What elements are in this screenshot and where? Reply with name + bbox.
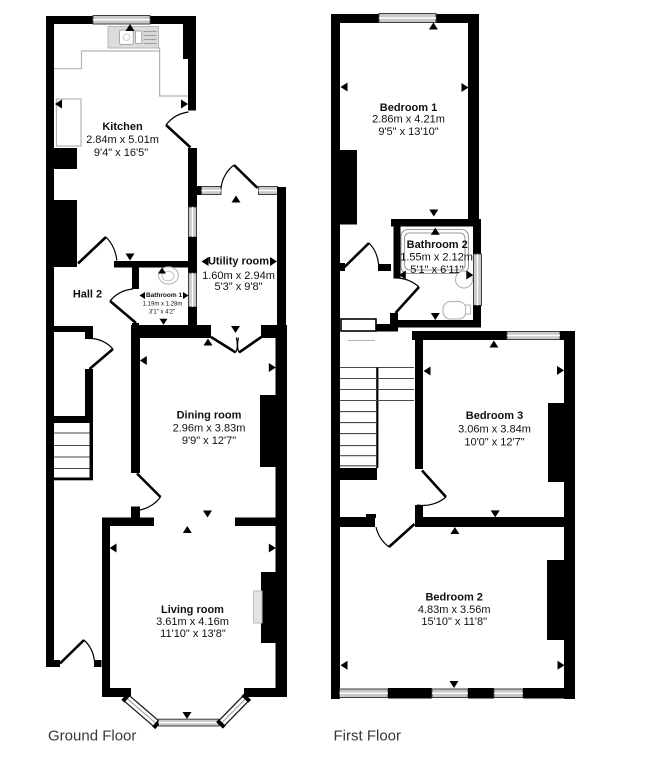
- svg-text:5'1" x 6'11": 5'1" x 6'11": [410, 264, 463, 276]
- svg-text:3'1" x 4'2": 3'1" x 4'2": [149, 309, 175, 315]
- svg-text:Dining room: Dining room: [177, 410, 242, 422]
- svg-text:15'10" x 11'8": 15'10" x 11'8": [421, 616, 487, 628]
- svg-text:Bedroom 1: Bedroom 1: [380, 102, 437, 114]
- svg-text:1.55m x 2.12m: 1.55m x 2.12m: [400, 252, 473, 264]
- svg-text:Hall 2: Hall 2: [73, 289, 102, 301]
- svg-text:Bedroom 3: Bedroom 3: [466, 410, 523, 422]
- svg-text:4.83m x 3.56m: 4.83m x 3.56m: [418, 604, 491, 616]
- svg-text:3.61m x 4.16m: 3.61m x 4.16m: [156, 616, 229, 628]
- svg-text:1.19m x 1.28m: 1.19m x 1.28m: [143, 301, 183, 307]
- svg-text:11'10" x 13'8": 11'10" x 13'8": [160, 628, 226, 640]
- svg-text:2.84m x 5.01m: 2.84m x 5.01m: [86, 134, 159, 146]
- svg-text:9'4" x 16'5": 9'4" x 16'5": [94, 147, 148, 159]
- svg-text:10'0" x 12'7": 10'0" x 12'7": [464, 437, 524, 449]
- svg-text:9'9" x 12'7": 9'9" x 12'7": [182, 435, 236, 447]
- svg-text:First Floor: First Floor: [334, 728, 402, 745]
- svg-text:Bedroom 2: Bedroom 2: [425, 592, 482, 604]
- svg-text:1.60m x 2.94m: 1.60m x 2.94m: [202, 270, 275, 282]
- svg-text:Utility room: Utility room: [208, 256, 269, 268]
- svg-text:Bathroom 2: Bathroom 2: [407, 239, 468, 251]
- svg-text:3.06m x 3.84m: 3.06m x 3.84m: [458, 424, 531, 436]
- svg-text:2.86m x 4.21m: 2.86m x 4.21m: [372, 114, 445, 126]
- svg-text:Living room: Living room: [161, 604, 224, 616]
- svg-text:9'5" x 13'10": 9'5" x 13'10": [378, 126, 438, 138]
- svg-text:Bathroom 1: Bathroom 1: [146, 292, 183, 299]
- svg-text:5'3" x 9'8": 5'3" x 9'8": [214, 281, 262, 293]
- svg-text:Ground Floor: Ground Floor: [48, 728, 136, 745]
- svg-text:2.96m x 3.83m: 2.96m x 3.83m: [173, 423, 246, 435]
- svg-text:Kitchen: Kitchen: [102, 121, 143, 133]
